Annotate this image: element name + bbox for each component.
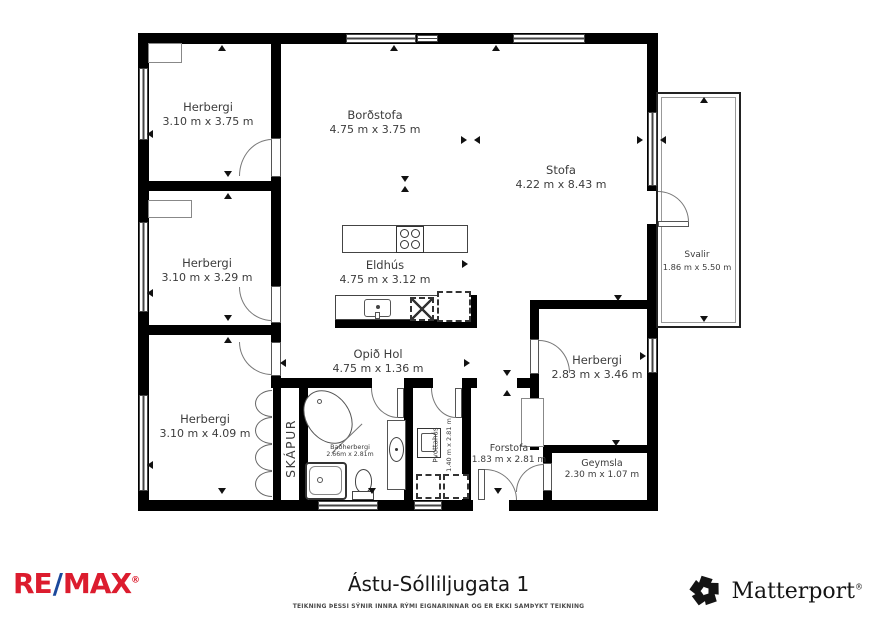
- door-swing-arc: [485, 469, 517, 500]
- measure-arrow: [147, 130, 153, 138]
- measure-arrow: [390, 45, 398, 51]
- measure-arrow: [700, 97, 708, 103]
- burner-icon: [400, 229, 409, 238]
- window: [318, 501, 378, 510]
- room-label-bedroom-right: Herbergi 2.83 m x 3.46 m: [517, 353, 677, 382]
- floorplan-canvas: Herbergi 3.10 m x 3.75 m Borðstofa 4.75 …: [0, 0, 877, 620]
- window: [513, 34, 585, 43]
- matterport-wordmark: Matterport®: [731, 579, 863, 604]
- door-swing-arc: [371, 388, 398, 418]
- shower-inner-line: [309, 466, 342, 495]
- room-dims: 4.75 m x 3.12 m: [305, 273, 465, 287]
- door-swing-arc: [239, 287, 272, 321]
- door-leaf: [271, 286, 281, 323]
- measure-arrow: [503, 370, 511, 376]
- wall-interior: [530, 309, 539, 339]
- room-name: Stofa: [481, 163, 641, 178]
- measure-arrow: [492, 45, 500, 51]
- matterport-label: Matterport: [731, 579, 855, 604]
- room-name: Forstofa: [467, 443, 551, 455]
- measure-arrow: [464, 359, 470, 367]
- room-label-storage: Geymsla 2.30 m x 1.07 m: [550, 458, 654, 482]
- room-label-laundry-dims: 1.40 m x 2.81 m: [442, 406, 456, 484]
- burner-icon: [411, 229, 420, 238]
- door-leaf-entrance: [478, 469, 485, 500]
- measure-arrow: [218, 45, 226, 51]
- room-label-hall: Opið Hol 4.75 m x 1.36 m: [298, 347, 458, 376]
- room-name: SKÁPUR: [283, 419, 298, 478]
- room-name: Þvottahús: [432, 428, 440, 463]
- wall-interior: [404, 378, 433, 388]
- wall-interior: [530, 300, 658, 309]
- closet-door-arc: [255, 471, 272, 497]
- room-name: Eldhús: [305, 258, 465, 273]
- measure-arrow: [503, 390, 511, 396]
- wall-interior: [281, 378, 372, 388]
- measure-arrow: [494, 488, 502, 494]
- measure-arrow: [401, 176, 409, 182]
- room-dims: 2.30 m x 1.07 m: [550, 470, 654, 482]
- room-label-entry: Forstofa 1.83 m x 2.81 m: [467, 443, 551, 467]
- room-dims: 2.66m x 2.81m: [302, 451, 398, 459]
- room-name: Herbergi: [128, 100, 288, 115]
- wall-interior: [271, 375, 281, 388]
- closet-door-arc: [255, 444, 272, 471]
- measure-arrow: [224, 337, 232, 343]
- window: [346, 34, 416, 43]
- wall-interior: [271, 335, 281, 342]
- room-name: Herbergi: [127, 256, 287, 271]
- matterport-logo: Matterport®: [688, 573, 863, 609]
- measure-arrow: [368, 488, 376, 494]
- wall-interior: [138, 181, 281, 191]
- wall-bottom: [509, 500, 658, 511]
- room-label-bathroom: Baðherbergi 2.66m x 2.81m: [302, 443, 398, 460]
- shower-drain-icon: [317, 477, 323, 483]
- door-leaf-laundry: [455, 388, 462, 418]
- room-name: Svalir: [656, 250, 738, 262]
- wall-storage-top: [543, 445, 658, 453]
- room-dims: 4.22 m x 8.43 m: [481, 178, 641, 192]
- tap-icon: [375, 312, 380, 319]
- room-dims: 2.83 m x 3.46 m: [517, 368, 677, 382]
- window: [648, 112, 657, 186]
- matterport-icon: [688, 573, 722, 609]
- measure-arrow: [401, 186, 409, 192]
- room-label-laundry-name: Þvottahús: [428, 406, 443, 484]
- room-label-balcony: Svalir 1.86 m x 5.50 m: [656, 250, 738, 272]
- room-dims: 3.10 m x 3.75 m: [128, 115, 288, 129]
- wall-interior: [462, 378, 477, 388]
- measure-arrow: [147, 461, 153, 469]
- wardrobe: [148, 43, 182, 63]
- room-label-bedroom-top-left: Herbergi 3.10 m x 3.75 m: [128, 100, 288, 129]
- window: [414, 501, 442, 510]
- window: [139, 395, 148, 491]
- room-name: Opið Hol: [298, 347, 458, 362]
- measure-arrow: [224, 193, 232, 199]
- room-label-kitchen: Eldhús 4.75 m x 3.12 m: [305, 258, 465, 287]
- bathtub-faucet-icon: [317, 399, 322, 404]
- room-dims: 1.86 m x 5.50 m: [656, 262, 738, 273]
- room-name: Borðstofa: [295, 108, 455, 123]
- room-name: Baðherbergi: [302, 443, 398, 451]
- shower: [305, 462, 347, 500]
- wall-interior: [138, 325, 281, 335]
- measure-arrow: [224, 315, 232, 321]
- door-swing-arc: [239, 342, 272, 375]
- dishwasher: [410, 297, 434, 321]
- room-name: Geymsla: [550, 458, 654, 470]
- room-label-bedroom-mid-left: Herbergi 3.10 m x 3.29 m: [127, 256, 287, 285]
- room-dims: 4.75 m x 3.75 m: [295, 123, 455, 137]
- door-swing-arc: [516, 464, 544, 492]
- room-dims: 1.83 m x 2.81 m: [467, 455, 551, 467]
- room-label-dining: Borðstofa 4.75 m x 3.75 m: [295, 108, 455, 137]
- measure-arrow: [218, 488, 226, 494]
- stove: [396, 226, 424, 253]
- door-swing-arc: [239, 139, 272, 176]
- measure-arrow: [147, 289, 153, 297]
- burner-icon: [411, 240, 420, 249]
- room-dims: 3.10 m x 3.29 m: [127, 271, 287, 285]
- room-dims: 4.75 m x 1.36 m: [298, 362, 458, 376]
- room-name: Herbergi: [125, 412, 285, 427]
- floorplan-page: { "plan": { "rooms": { "bedroom_top_left…: [0, 0, 877, 620]
- matterport-registered-mark: ®: [855, 582, 863, 591]
- room-label-bedroom-bottom-left: Herbergi 3.10 m x 4.09 m: [125, 412, 285, 441]
- measure-arrow: [224, 171, 232, 177]
- measure-arrow: [614, 295, 622, 301]
- wall-interior: [543, 491, 552, 502]
- measure-arrow: [280, 359, 286, 367]
- measure-arrow: [660, 136, 666, 144]
- room-label-closet: SKÁPUR: [276, 400, 304, 496]
- measure-arrow: [461, 136, 467, 144]
- measure-arrow: [637, 136, 643, 144]
- burner-icon: [400, 240, 409, 249]
- room-dims: 3.10 m x 4.09 m: [125, 427, 285, 441]
- faucet-dot-icon: [376, 305, 380, 309]
- room-dims: 1.40 m x 2.81 m: [445, 418, 453, 472]
- wardrobe: [148, 200, 192, 218]
- measure-arrow: [612, 440, 620, 446]
- fridge: [437, 291, 471, 322]
- door-leaf: [271, 138, 281, 177]
- room-name: Herbergi: [517, 353, 677, 368]
- window: [417, 35, 438, 42]
- entry-closet: [521, 398, 544, 447]
- kitchen-sink: [364, 299, 391, 317]
- measure-arrow: [474, 136, 480, 144]
- door-leaf-bathroom: [397, 388, 404, 418]
- measure-arrow: [700, 316, 708, 322]
- room-label-living: Stofa 4.22 m x 8.43 m: [481, 163, 641, 192]
